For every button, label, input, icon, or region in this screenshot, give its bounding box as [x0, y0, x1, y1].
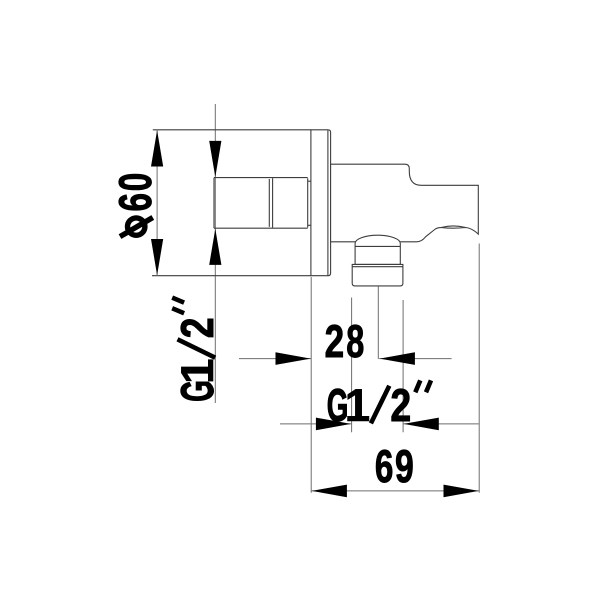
svg-text:0: 0 [109, 173, 161, 192]
svg-text:2: 2 [390, 379, 411, 431]
svg-text:2: 2 [325, 315, 345, 367]
svg-text:6: 6 [109, 193, 161, 212]
svg-text:2: 2 [171, 317, 223, 338]
svg-text:6: 6 [375, 440, 394, 492]
svg-text:1: 1 [345, 379, 371, 431]
svg-text:1: 1 [171, 358, 223, 384]
svg-text:9: 9 [395, 440, 414, 492]
svg-text:8: 8 [346, 315, 364, 367]
